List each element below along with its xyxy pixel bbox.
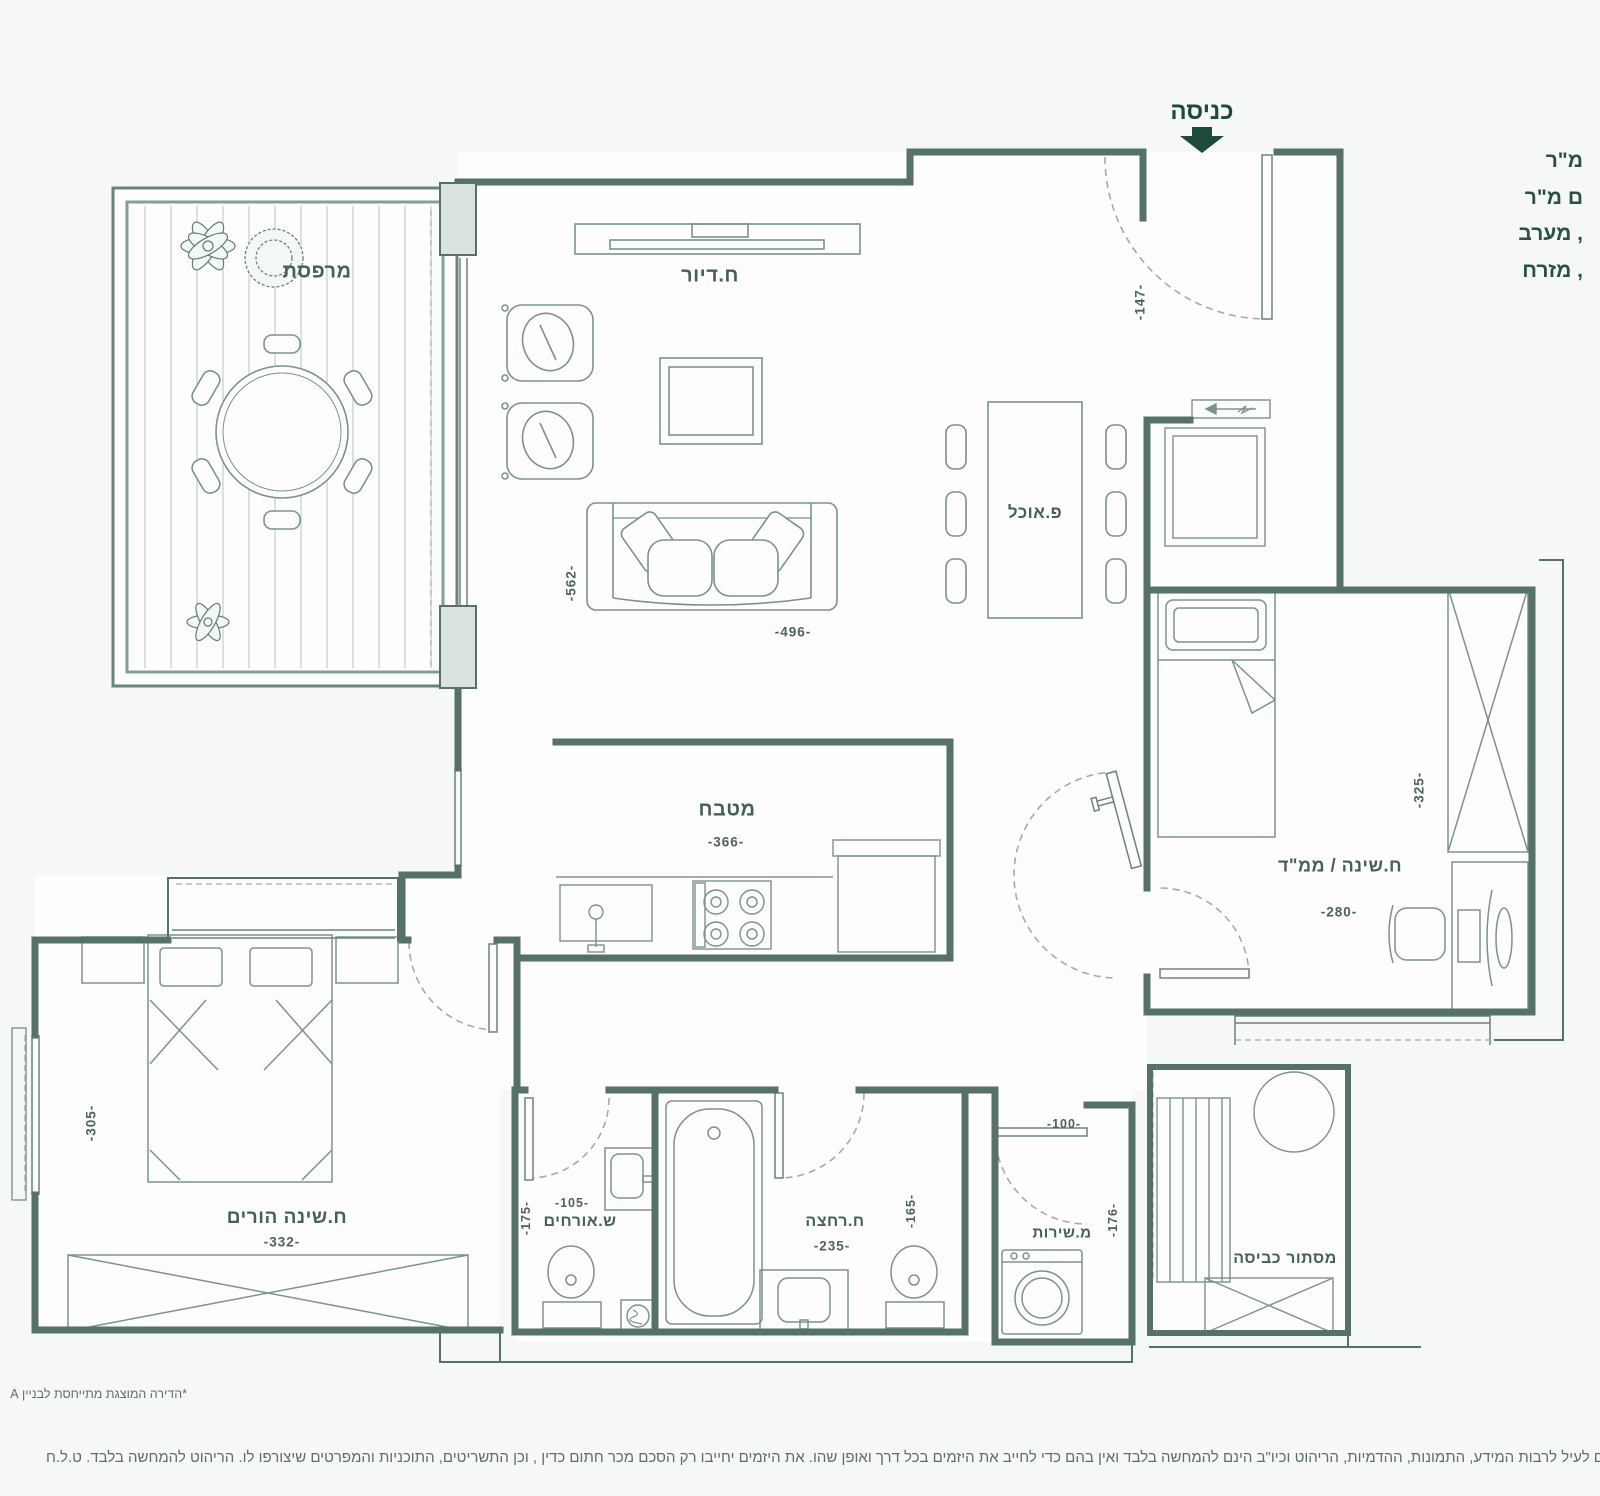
room-label-dining: פ.אוכל <box>1008 503 1062 523</box>
floor-plan-drawing <box>0 0 1600 1496</box>
single-bed <box>1158 590 1275 837</box>
dim-safe-bedroom-h: -325- <box>1412 772 1427 809</box>
entrance-door <box>1262 155 1272 319</box>
sofa <box>587 503 837 610</box>
dim-living-h: -562- <box>564 565 579 602</box>
armchair <box>502 305 593 381</box>
entrance-label: כניסה <box>1170 98 1233 126</box>
room-label-kitchen: מטבח <box>698 799 755 822</box>
building-note: *הדירה המוצגת מתייחסת לבניין A <box>10 1387 187 1401</box>
room-label-service-wc: מ.שירות <box>1032 1225 1091 1242</box>
armchair <box>502 403 593 479</box>
room-label-laundry: מסתור כביסה <box>1233 1250 1337 1268</box>
dim-bath-h: -165- <box>904 1194 918 1228</box>
nightstand <box>82 937 144 983</box>
room-label-parents-bedroom: ח.שינה הורים <box>227 1207 347 1229</box>
floor-plan-page: כניסה מרפסת ח.דיור פ.אוכל מטבח ח.שינה / … <box>0 0 1600 1496</box>
nightstand <box>336 937 398 983</box>
side-text-line: ם מ"ר <box>1518 180 1583 217</box>
dim-kitchen: -366- <box>708 835 745 850</box>
side-text-line: , מזרח <box>1518 253 1583 290</box>
dim-living-w: -496- <box>775 625 812 640</box>
room-label-bathroom: ח.רחצה <box>805 1213 864 1231</box>
entrance-arrow-icon <box>1180 127 1224 153</box>
dim-guest-h: -175- <box>519 1201 533 1235</box>
bathtub <box>666 1101 762 1324</box>
dim-entry: -147- <box>1133 284 1148 321</box>
room-label-safe-bedroom: ח.שינה / ממ"ד <box>1278 856 1402 877</box>
dim-parents-h: -305- <box>84 1105 99 1142</box>
dim-guest-w: -105- <box>555 1196 589 1210</box>
side-text: מ"ר ם מ"ר , מערב , מזרח <box>1518 143 1583 289</box>
side-text-line: , מערב <box>1518 216 1583 253</box>
dim-bath-w: -235- <box>814 1239 851 1254</box>
dim-service-w: -100- <box>1047 1117 1081 1131</box>
side-text-line: מ"ר <box>1518 143 1583 180</box>
disclaimer: ם לעיל לרבות המידע, התמונות, ההדמיות, הר… <box>46 1449 1600 1466</box>
dim-parents-w: -332- <box>264 1235 301 1250</box>
room-label-living: ח.דיור <box>681 265 739 288</box>
washing-machine <box>1002 1250 1082 1334</box>
dim-service-h: -176- <box>1106 1203 1120 1237</box>
dim-safe-bedroom-w: -280- <box>1321 905 1358 920</box>
room-label-guest-wc: ש.אורחים <box>543 1213 616 1231</box>
room-label-balcony: מרפסת <box>282 261 351 284</box>
